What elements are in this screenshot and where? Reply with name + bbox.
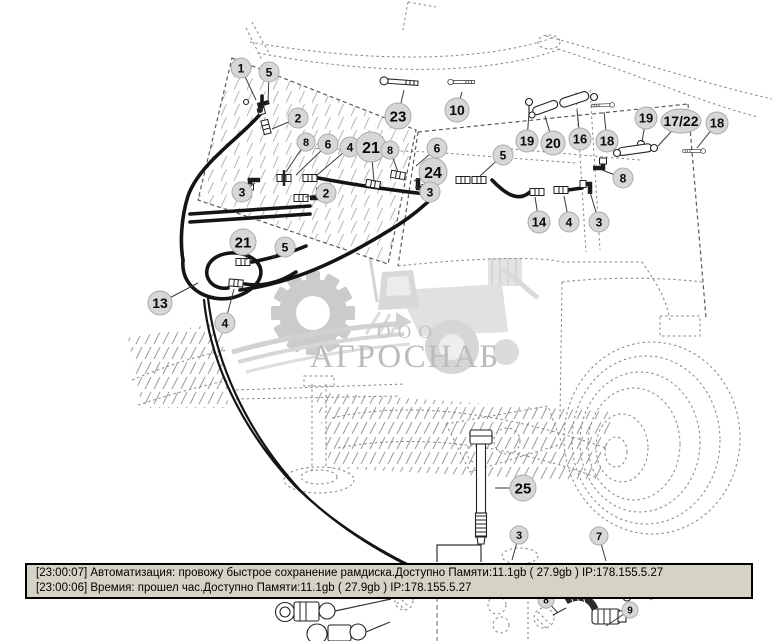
callout-number: 14 [532,215,547,230]
callout-number: 13 [152,295,168,311]
callout-number: 9 [627,606,633,617]
callout-number: 24 [424,165,442,182]
callout-5: 5 [480,145,513,176]
callout-number: 21 [235,234,252,251]
callout-number: 7 [596,531,602,543]
callout-number: 5 [282,240,289,254]
watermark: ООО АГРОСНАБ [232,257,538,375]
callout-number: 6 [434,141,441,155]
callout-number: 16 [573,132,587,147]
status-log: [23:00:07] Автоматизация: провожу быстро… [25,563,753,599]
callout-number: 8 [387,145,393,157]
callout-number: 2 [295,111,302,125]
callout-19: 19 [635,107,657,142]
callout-7: 7 [590,527,608,561]
callout-number: 2 [323,186,330,200]
callout-number: 19 [520,134,534,149]
callout-21: 21 [230,229,256,260]
callout-number: 8 [620,171,627,185]
callout-3: 3 [510,526,528,560]
callout-number: 4 [222,316,229,330]
callout-number: 4 [347,140,354,154]
parts-diagram: ООО АГРОСНАБ [0,0,781,641]
bottom-fittings-left [276,592,510,641]
callout-18: 18 [596,112,618,152]
callout-number: 17/22 [663,113,698,129]
callout-number: 21 [362,140,380,157]
callout-4: 4 [215,289,235,333]
callout-number: 1 [238,61,245,75]
callout-number: 3 [427,185,434,199]
callout-number: 5 [266,65,273,79]
callout-number: 19 [639,111,653,126]
callout-number: 18 [710,116,724,131]
callout-25: 25 [495,475,536,501]
callout-number: 18 [600,134,614,149]
callout-number: 8 [303,137,309,149]
callout-number: 6 [325,137,332,151]
callout-number: 3 [239,185,246,199]
callout-number: 4 [566,215,573,229]
callout-number: 3 [596,215,603,229]
callout-23: 23 [385,90,411,129]
callout-18: 18 [697,112,728,148]
callout-19: 19 [516,112,538,152]
status-log-line-2: [23:00:06] Времия: прошел час.Доступно П… [36,581,742,596]
watermark-company-name: АГРОСНАБ [310,339,501,375]
callout-number: 23 [390,108,407,125]
callout-4: 4 [559,196,579,232]
callout-3: 3 [589,192,609,232]
callout-14: 14 [528,197,550,233]
callout-number: 25 [515,480,532,497]
status-log-line-1: [23:00:07] Автоматизация: провожу быстро… [36,566,742,581]
callout-number: 5 [500,148,507,162]
callout-17/22: 17/22 [658,109,701,146]
parts-diagram-page: ООО АГРОСНАБ [0,0,781,641]
callout-5: 5 [272,237,295,258]
callout-number: 10 [449,102,465,118]
callout-number: 3 [516,530,522,542]
callout-20: 20 [541,116,565,155]
callout-number: 20 [545,135,561,151]
callout-8: 8 [602,168,633,188]
callout-10: 10 [445,92,469,122]
